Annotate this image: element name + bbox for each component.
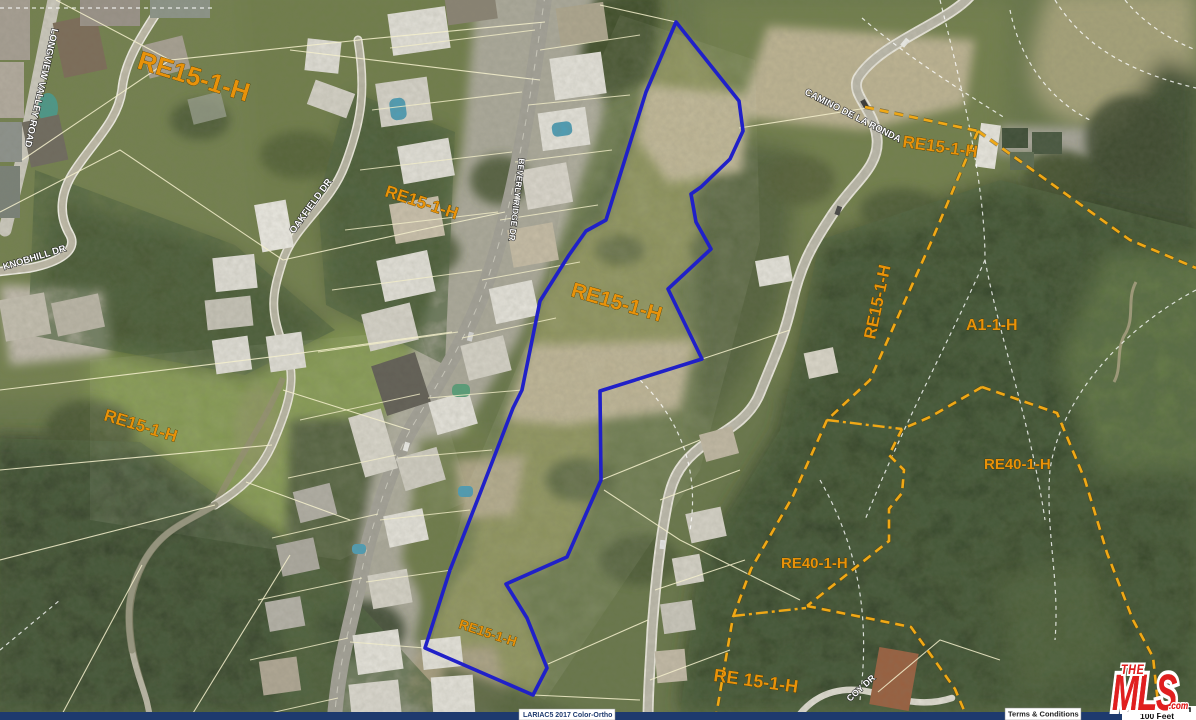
- svg-text:RE40-1-H: RE40-1-H: [984, 456, 1051, 473]
- svg-text:LARIAC5 2017 Color-Ortho: LARIAC5 2017 Color-Ortho: [523, 712, 612, 719]
- svg-text:Terms & Conditions: Terms & Conditions: [1008, 710, 1079, 719]
- svg-text:RE40-1-H: RE40-1-H: [781, 555, 848, 572]
- svg-text:.com: .com: [1169, 699, 1188, 711]
- svg-text:THE: THE: [1121, 662, 1144, 678]
- svg-text:A1-1-H: A1-1-H: [966, 317, 1018, 334]
